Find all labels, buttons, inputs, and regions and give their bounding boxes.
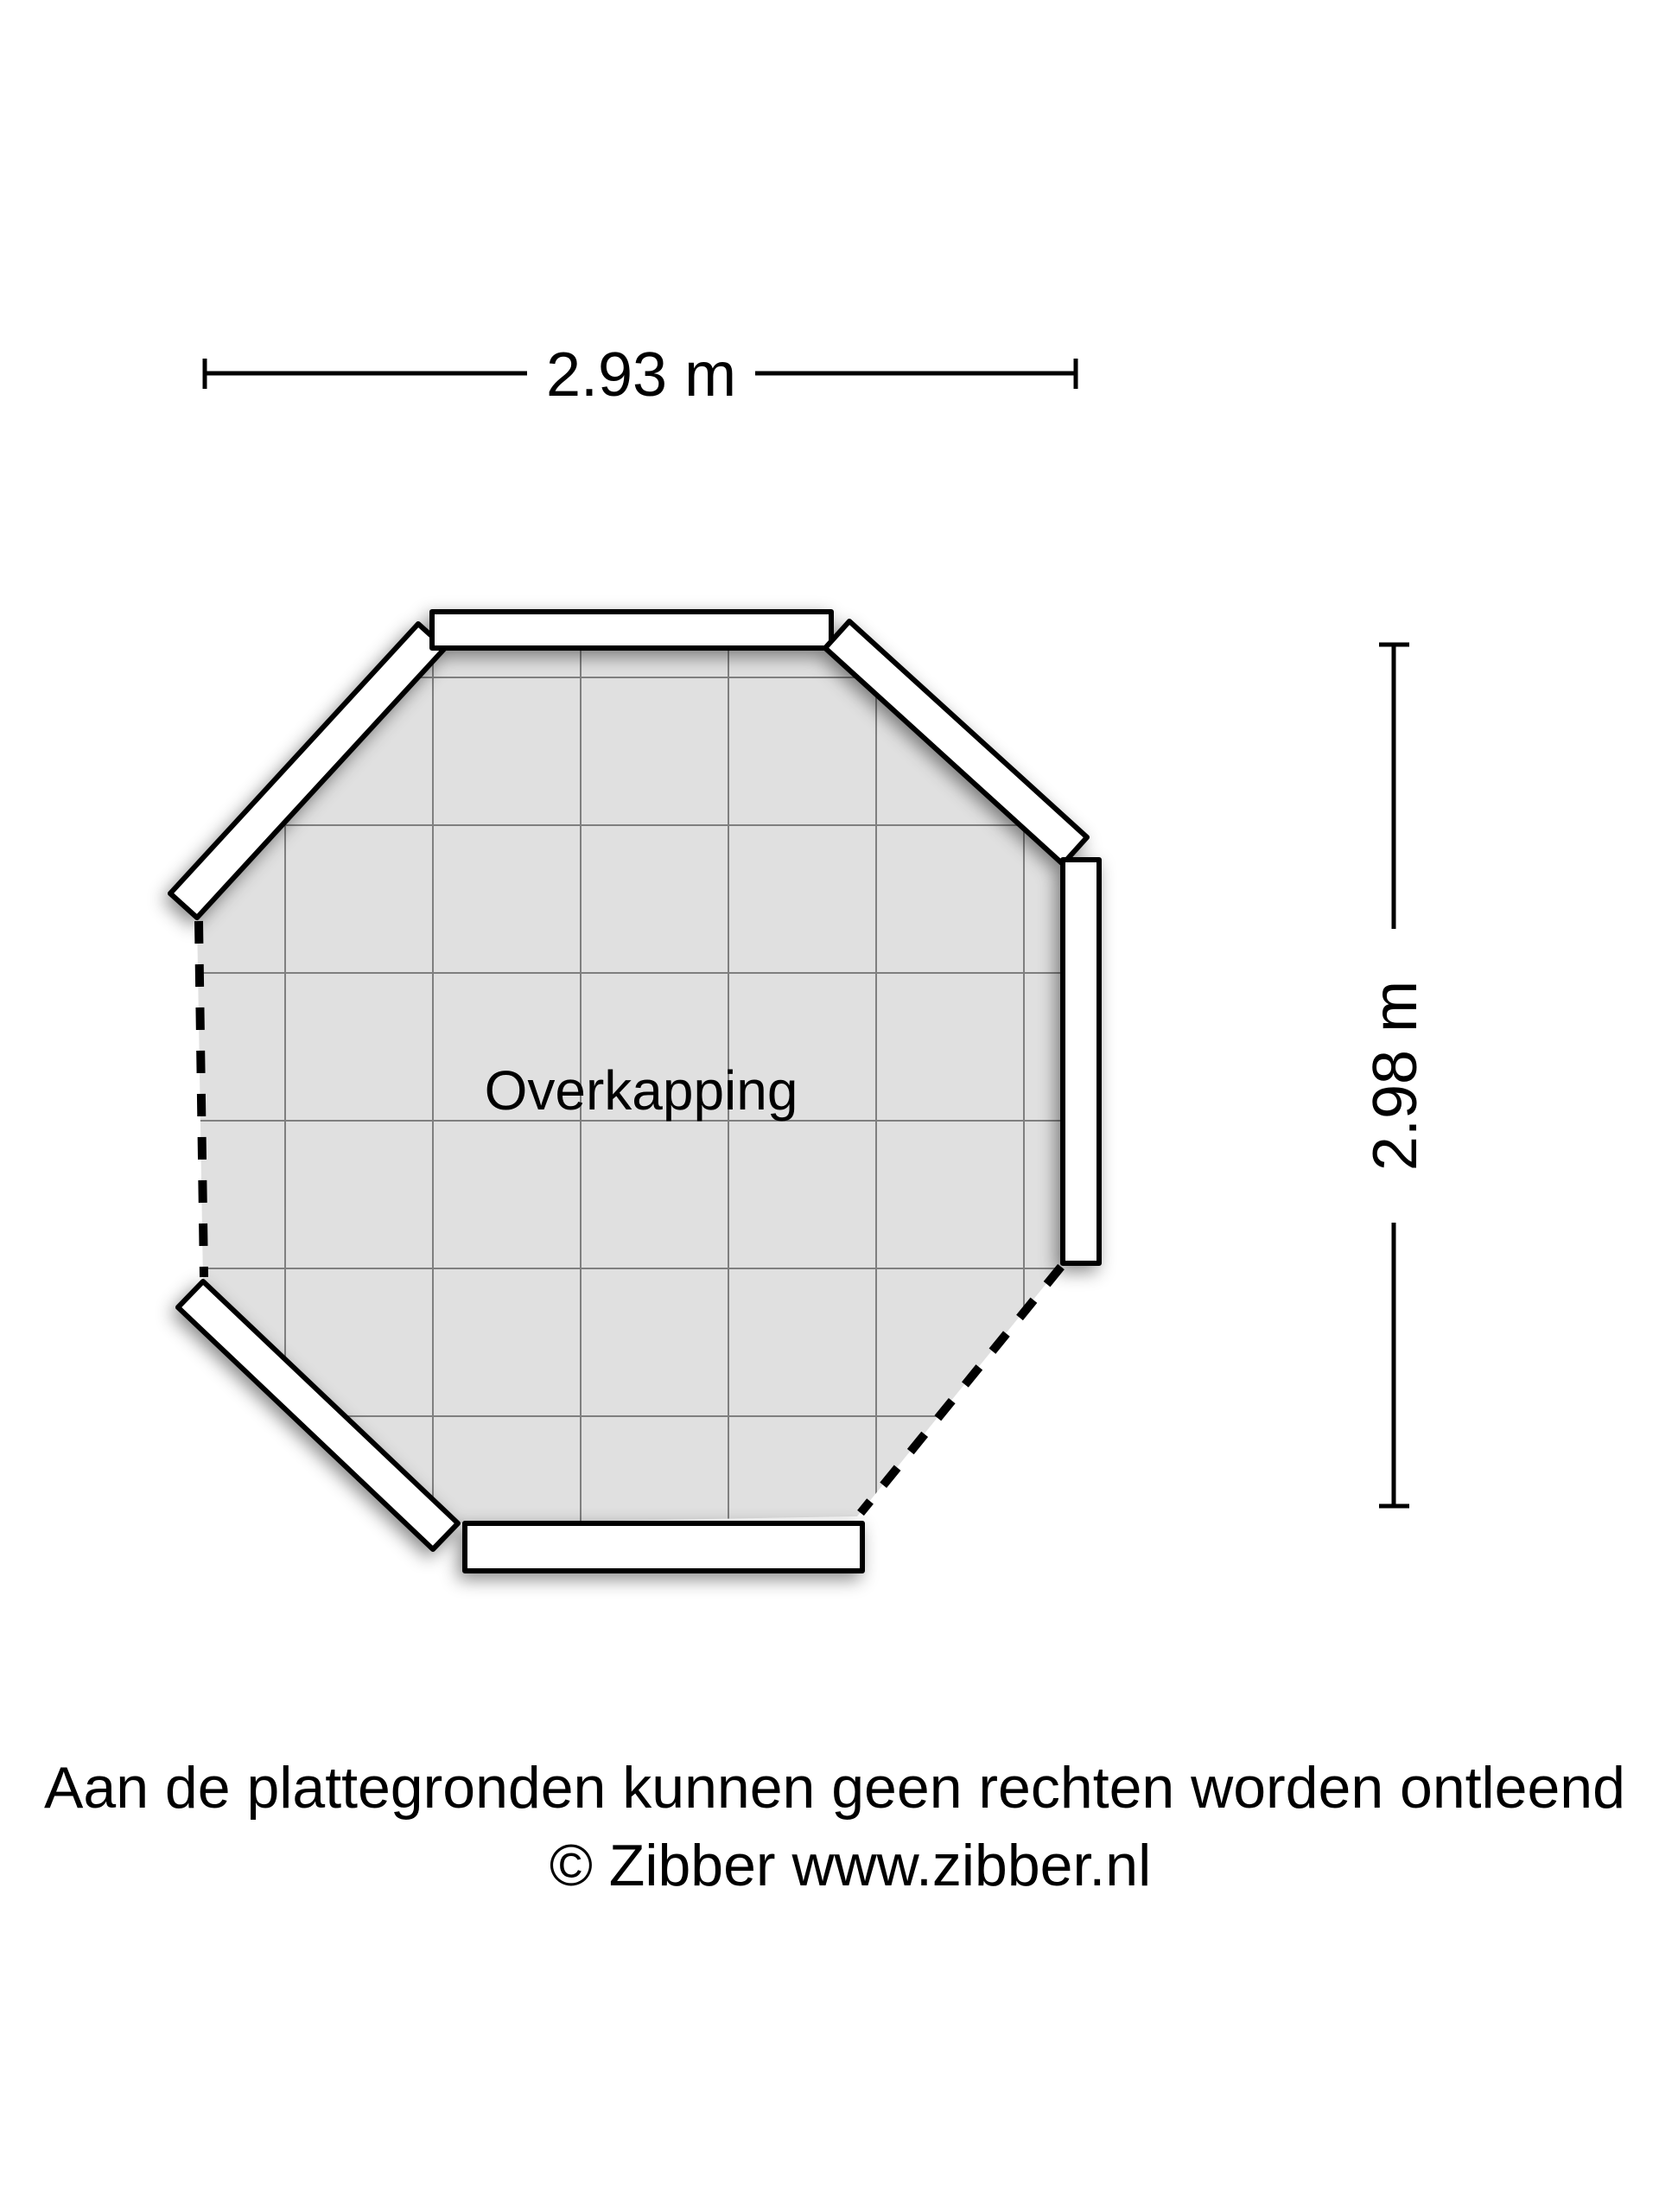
wall-bottom bbox=[465, 1523, 862, 1571]
room-label: Overkapping bbox=[485, 1059, 798, 1122]
height-dimension-label: 2.98 m bbox=[1361, 981, 1430, 1171]
wall-right bbox=[1063, 860, 1099, 1263]
disclaimer-text: Aan de plattegronden kunnen geen rechten… bbox=[44, 1755, 1625, 1821]
floorplan-page: 2.93 m 2.98 m bbox=[0, 0, 1659, 2212]
width-dimension-label: 2.93 m bbox=[546, 340, 736, 410]
wall-top bbox=[432, 612, 831, 648]
copyright-text: © Zibber www.zibber.nl bbox=[550, 1833, 1151, 1898]
open-edge-left-dashed bbox=[199, 921, 204, 1277]
floorplan-canvas: 2.93 m 2.98 m bbox=[0, 0, 1659, 2212]
